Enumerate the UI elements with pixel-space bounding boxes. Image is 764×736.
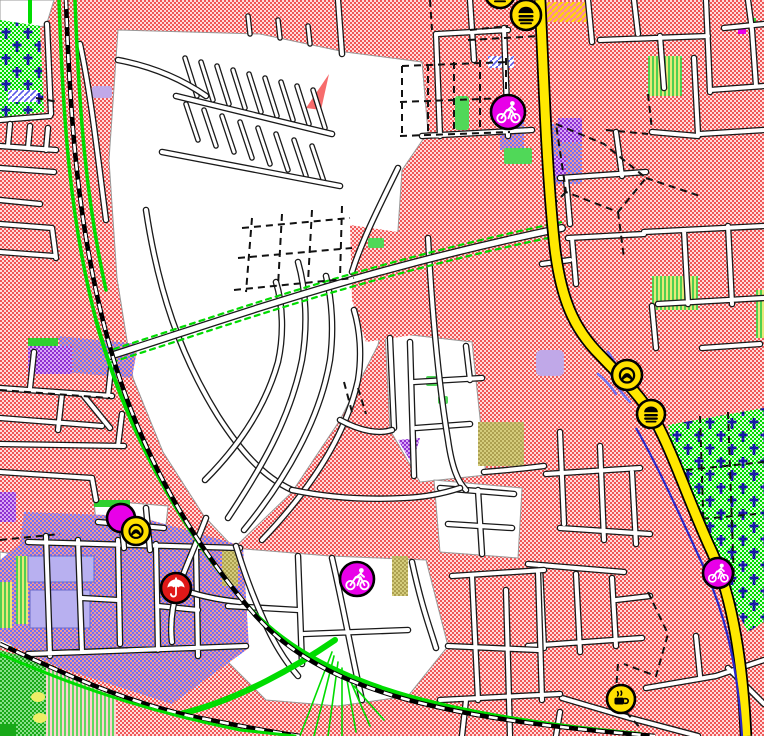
bicycle-shop-north-circle[interactable] — [491, 95, 525, 129]
poi-bicycle-shop-north[interactable] — [491, 95, 525, 129]
zigzag-northeast — [545, 2, 589, 22]
map-viewport[interactable] — [0, 0, 764, 736]
lavender-building-a — [28, 556, 94, 582]
blue-hatch-b — [8, 90, 38, 102]
green-rim-west — [28, 338, 58, 346]
poi-bakery-east[interactable] — [612, 360, 642, 390]
brownfield-center — [478, 422, 524, 466]
poi-bakery-west[interactable] — [122, 517, 150, 545]
map-canvas[interactable] — [0, 0, 764, 736]
forest-clearing-b — [33, 713, 47, 723]
darkgreen-bottom-edge — [0, 724, 16, 736]
poi-bicycle-shop-southeast[interactable] — [703, 558, 733, 588]
fast-food-east-circle[interactable] — [637, 400, 665, 428]
bicycle-shop-center-circle[interactable] — [340, 562, 374, 596]
poi-cafe-south[interactable] — [607, 685, 635, 713]
poi-fast-food-east[interactable] — [637, 400, 665, 428]
poi-shelter-west[interactable] — [161, 573, 191, 603]
forest-clearing-a — [31, 692, 45, 702]
purple-left-edge — [0, 492, 16, 522]
poi-fast-food-north[interactable] — [511, 0, 541, 30]
lavender-blob-northwest — [92, 86, 112, 98]
lavender-blob-east — [536, 350, 564, 376]
green-patch-c — [368, 238, 384, 248]
scrub-west-a — [16, 556, 28, 624]
brownfield-south-a — [392, 556, 408, 596]
green-patch-b — [504, 148, 532, 164]
cemetery-top-left-crosses — [0, 20, 44, 117]
green-patch-a — [455, 96, 469, 130]
poi-bicycle-shop-center[interactable] — [340, 562, 374, 596]
scrub-west-b — [0, 582, 12, 628]
bicycle-shop-southeast-circle[interactable] — [703, 558, 733, 588]
